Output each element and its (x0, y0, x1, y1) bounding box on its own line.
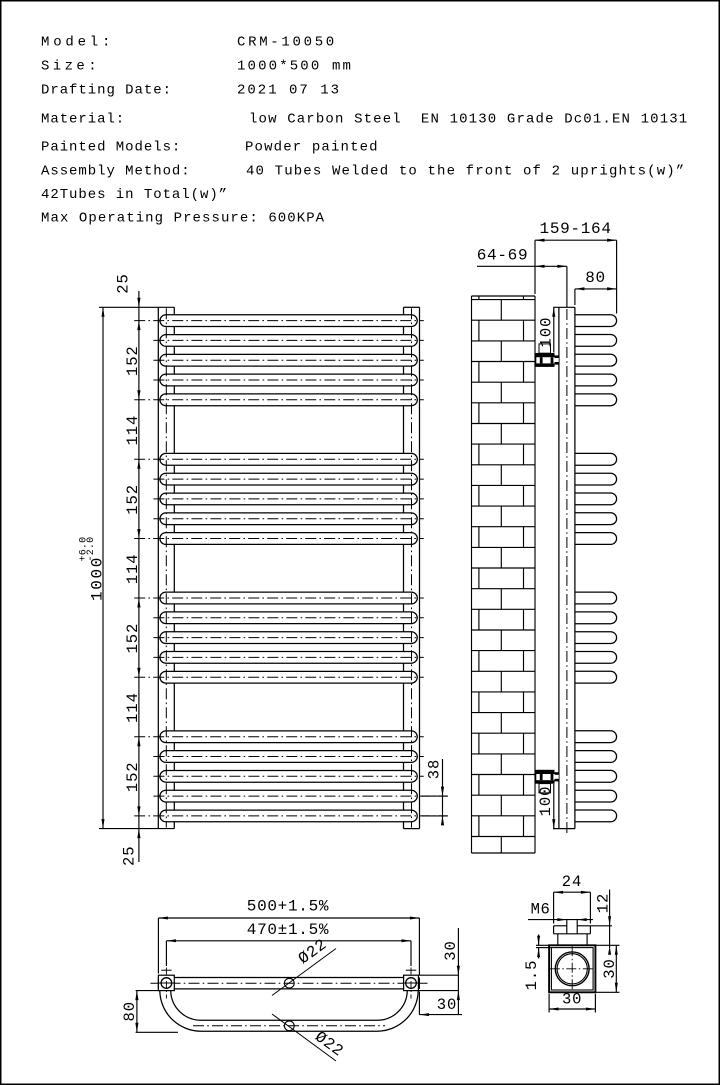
svg-text:25: 25 (115, 273, 133, 293)
svg-text:470±1.5%: 470±1.5% (247, 921, 329, 939)
svg-text:1000: 1000 (89, 556, 107, 601)
svg-text:M6: M6 (531, 901, 551, 919)
svg-text:Drafting Date:: Drafting Date: (41, 83, 172, 99)
svg-text:30: 30 (562, 991, 582, 1009)
svg-text:152: 152 (124, 484, 142, 515)
svg-text:40 Tubes Welded to the front o: 40 Tubes Welded to the front of 2 uprigh… (246, 164, 685, 180)
svg-text:25: 25 (121, 846, 139, 866)
svg-text:152: 152 (124, 623, 142, 654)
svg-text:2021 07 13: 2021 07 13 (237, 83, 341, 99)
svg-text:80: 80 (121, 1001, 139, 1021)
svg-text:Powder painted: Powder painted (245, 140, 379, 156)
svg-text:24: 24 (562, 873, 582, 891)
svg-text:100: 100 (537, 786, 555, 817)
svg-text:152: 152 (124, 345, 142, 376)
svg-text:Assembly Method:: Assembly Method: (41, 164, 191, 180)
svg-text:64-69: 64-69 (477, 246, 529, 264)
svg-text:-2.0: -2.0 (86, 537, 97, 562)
svg-text:30: 30 (601, 958, 619, 978)
svg-text:80: 80 (585, 269, 606, 287)
svg-text:12: 12 (595, 893, 613, 913)
svg-text:100: 100 (537, 317, 555, 348)
svg-text:30: 30 (442, 940, 460, 960)
svg-text:Material:: Material: (41, 112, 125, 128)
svg-text:114: 114 (124, 553, 142, 584)
svg-text:1000*500 mm: 1000*500 mm (237, 59, 353, 75)
svg-text:114: 114 (124, 415, 142, 446)
svg-text:42Tubes in Total(w)”: 42Tubes in Total(w)” (41, 187, 228, 203)
svg-text:152: 152 (124, 761, 142, 792)
svg-text:500+1.5%: 500+1.5% (247, 898, 329, 916)
svg-text:Painted Models:: Painted Models: (41, 140, 181, 156)
svg-text:30: 30 (437, 996, 457, 1014)
svg-text:Max Operating Pressure: 600KPA: Max Operating Pressure: 600KPA (41, 211, 325, 227)
svg-text:1.5: 1.5 (523, 960, 541, 991)
svg-text:low Carbon Steel EN 10130 Gra: low Carbon Steel EN 10130 Grade Dc01.EN … (249, 112, 688, 128)
svg-text:Model:: Model: (41, 35, 114, 51)
svg-text:38: 38 (426, 759, 444, 779)
svg-text:114: 114 (124, 692, 142, 723)
svg-text:159-164: 159-164 (540, 220, 612, 238)
svg-text:CRM-10050: CRM-10050 (237, 35, 337, 51)
svg-text:Size:: Size: (41, 59, 100, 75)
